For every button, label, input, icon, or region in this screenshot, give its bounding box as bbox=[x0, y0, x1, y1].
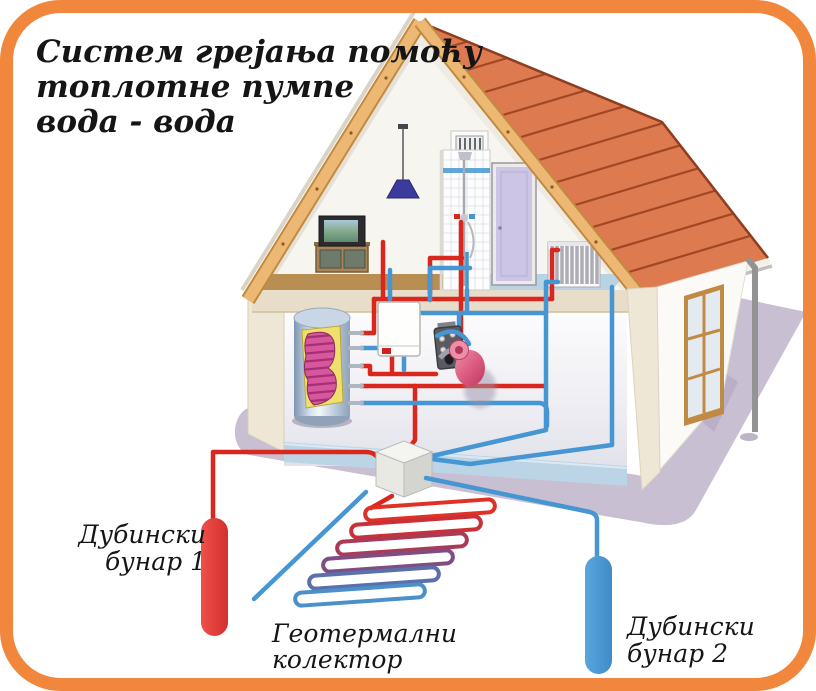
shower-head bbox=[458, 152, 472, 160]
door-handle bbox=[498, 226, 502, 230]
well1-label-line-2: бунар 1 bbox=[105, 547, 206, 576]
cabinet-door-left bbox=[320, 250, 341, 268]
heating-system-diagram: Систем грејања помоћу топлотне пумпе вод… bbox=[0, 0, 816, 691]
pump-inlet bbox=[455, 346, 463, 354]
boiler-badge bbox=[382, 348, 391, 354]
storage-tank bbox=[292, 308, 352, 428]
side-door bbox=[684, 284, 724, 426]
left-exterior-wall bbox=[248, 296, 284, 452]
geothermal-collector bbox=[295, 499, 496, 606]
deep-well-2 bbox=[585, 556, 612, 674]
towel-rail bbox=[443, 168, 490, 173]
boiler-body bbox=[378, 302, 420, 356]
hot-tap bbox=[454, 214, 460, 219]
title-line-3: вода - вода bbox=[36, 104, 236, 140]
corner-column bbox=[627, 287, 660, 490]
television bbox=[319, 216, 365, 246]
attic-door bbox=[492, 163, 536, 285]
title-line-2: топлотне пумпе bbox=[36, 69, 354, 105]
manifold-box bbox=[376, 441, 432, 497]
wood-floor bbox=[256, 274, 455, 290]
title-line-1: Систем грејања помоћу bbox=[36, 34, 483, 70]
tv-screen bbox=[324, 220, 358, 242]
collector-label-line-1: Геотермални bbox=[271, 619, 457, 648]
cabinet-door-right bbox=[344, 250, 365, 268]
well1-label-line-1: Дубински bbox=[77, 520, 206, 549]
well2-label-line-2: бунар 2 bbox=[627, 639, 728, 668]
well2-label-line-1: Дубински bbox=[626, 612, 755, 641]
boiler bbox=[378, 302, 420, 356]
cold-tap bbox=[469, 214, 475, 219]
downspout-shadow bbox=[740, 433, 758, 441]
diagram-canvas: Систем грејања помоћу топлотне пумпе вод… bbox=[0, 0, 816, 691]
collector-label-line-2: колектор bbox=[272, 645, 402, 674]
tank-top bbox=[294, 308, 350, 328]
